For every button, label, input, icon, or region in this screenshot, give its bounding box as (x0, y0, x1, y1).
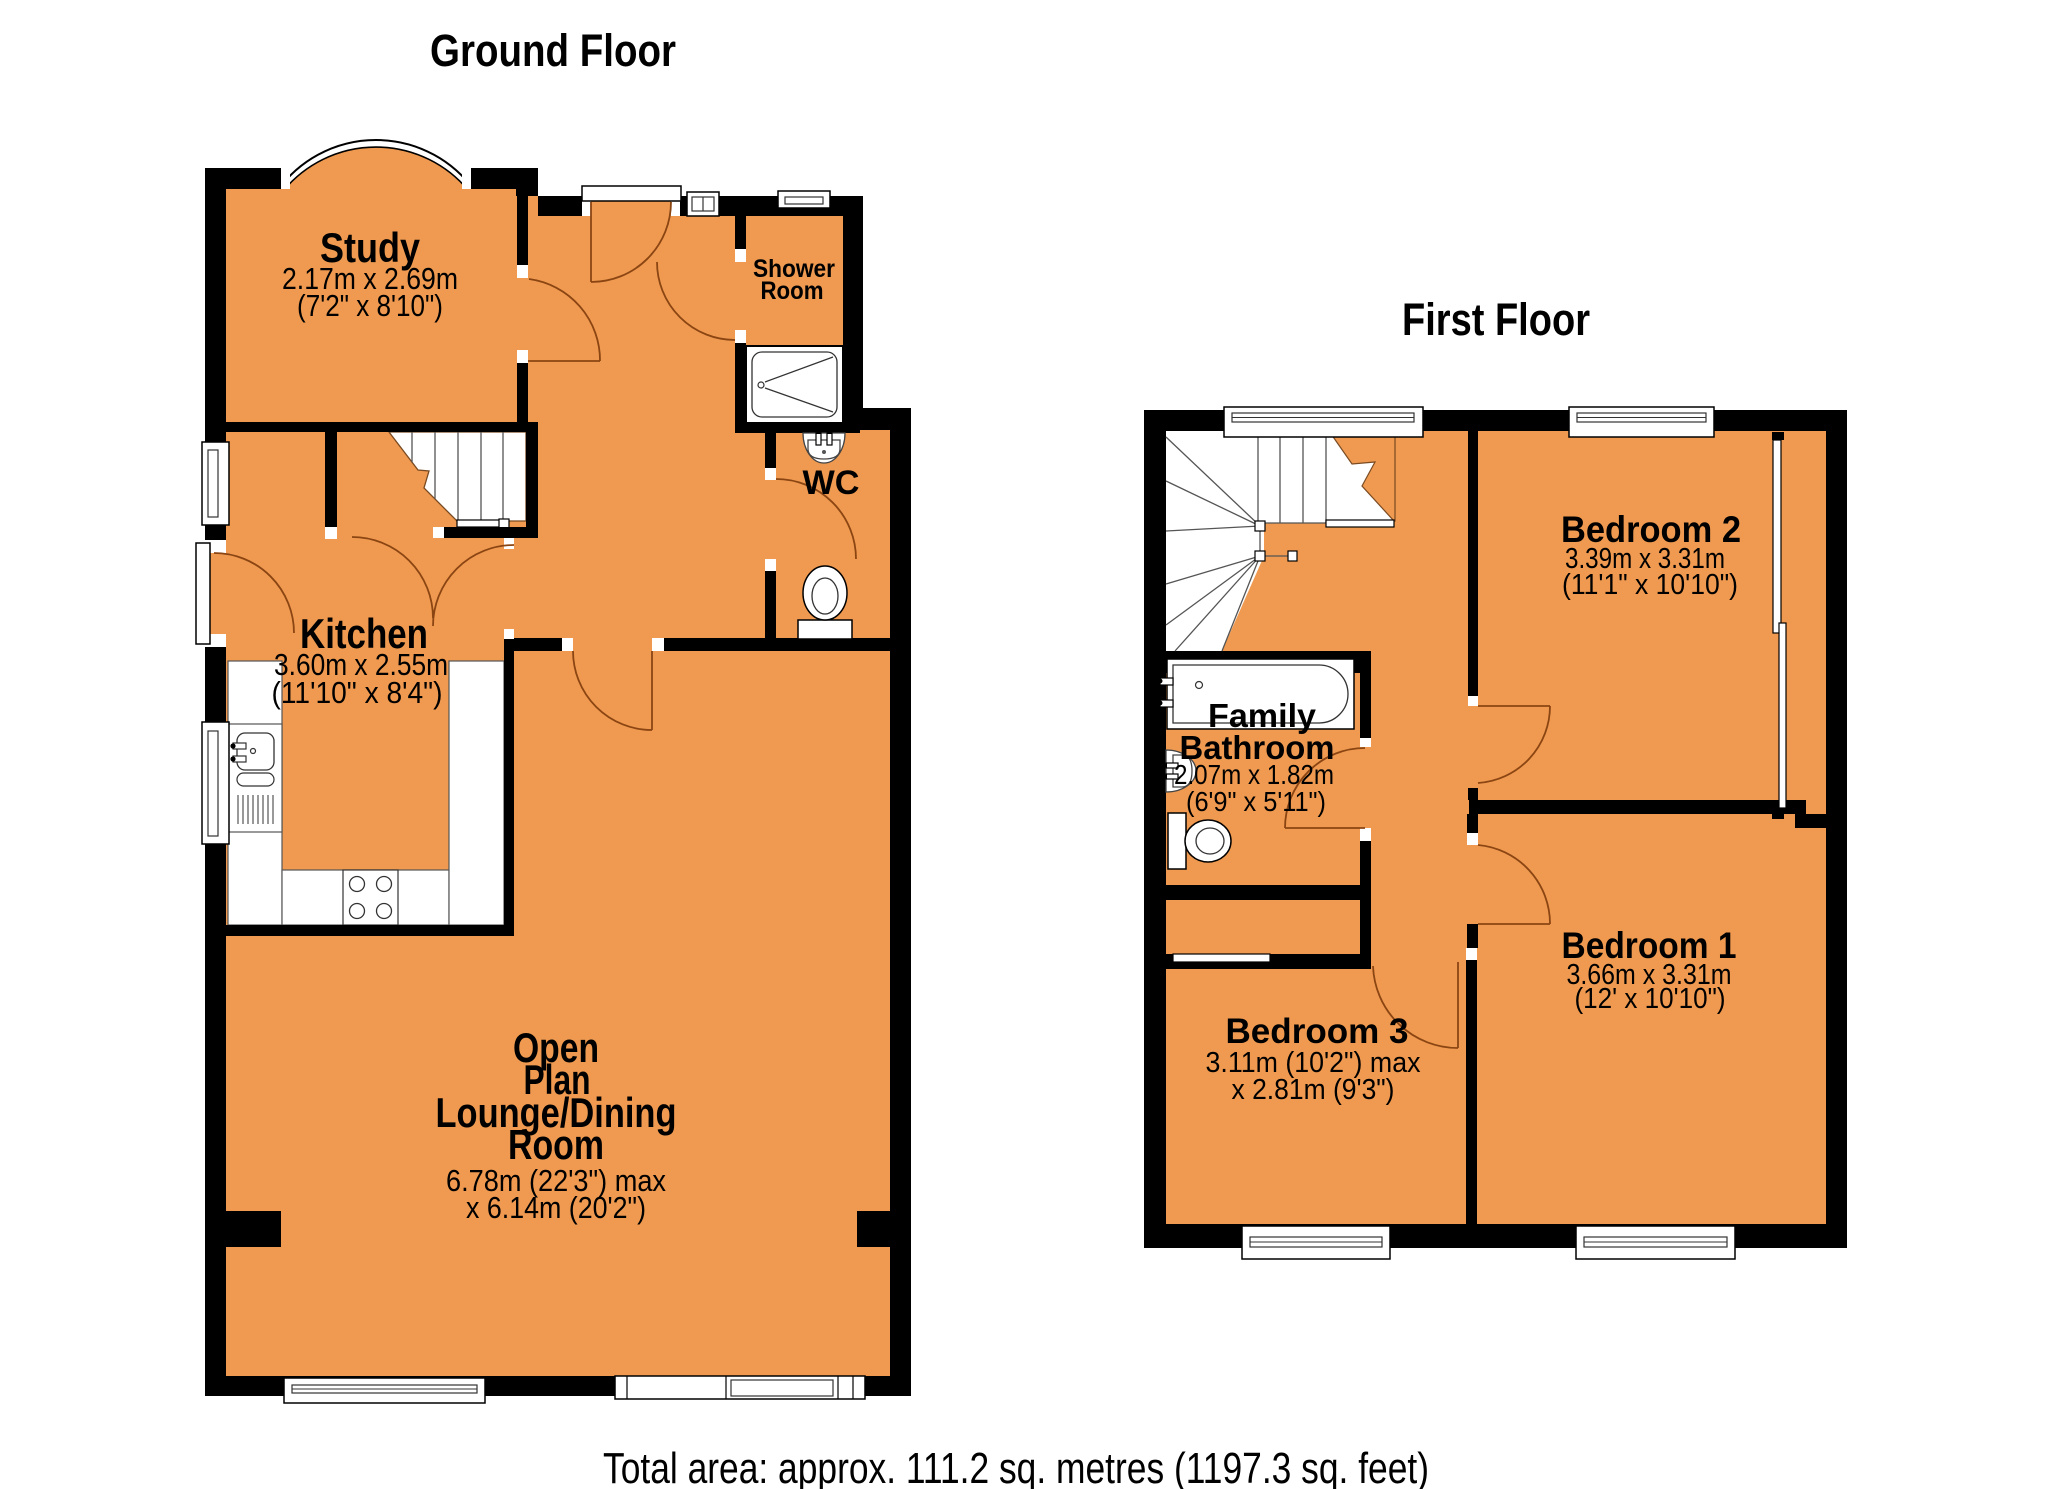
svg-text:Bedroom 3: Bedroom 3 (1226, 1012, 1409, 1051)
svg-text:Ground Floor: Ground Floor (430, 25, 676, 76)
svg-text:(6'9" x 5'11"): (6'9" x 5'11") (1186, 786, 1326, 817)
svg-text:(11'1" x 10'10"): (11'1" x 10'10") (1562, 569, 1738, 601)
svg-text:(7'2" x 8'10"): (7'2" x 8'10") (297, 288, 443, 323)
svg-text:x 2.81m (9'3"): x 2.81m (9'3") (1232, 1074, 1395, 1106)
svg-text:Room: Room (508, 1121, 604, 1168)
svg-text:Total area: approx. 111.2 sq.: Total area: approx. 111.2 sq. metres (11… (603, 1444, 1429, 1489)
svg-text:(12' x 10'10"): (12' x 10'10") (1575, 983, 1726, 1015)
svg-text:(11'10" x 8'4"): (11'10" x 8'4") (272, 675, 443, 710)
svg-text:x 6.14m (20'2"): x 6.14m (20'2") (466, 1190, 646, 1225)
svg-text:WC: WC (803, 464, 860, 502)
svg-text:First Floor: First Floor (1402, 294, 1590, 345)
svg-text:Room: Room (761, 277, 824, 305)
